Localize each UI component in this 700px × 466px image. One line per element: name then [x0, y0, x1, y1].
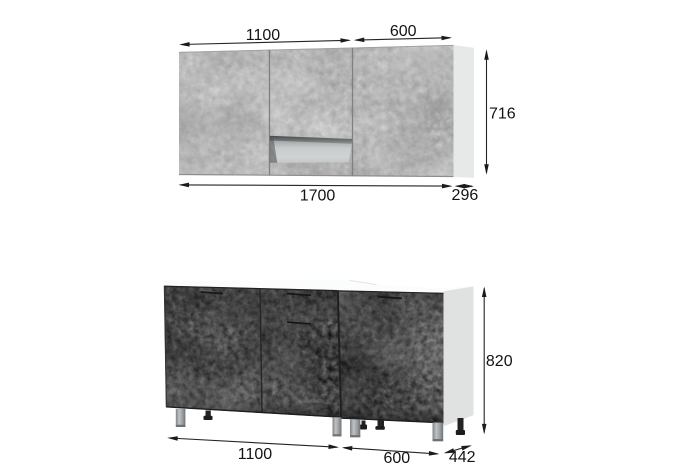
svg-text:716: 716: [489, 106, 516, 123]
svg-text:600: 600: [383, 450, 410, 466]
svg-text:1700: 1700: [300, 187, 336, 204]
svg-text:1100: 1100: [238, 446, 273, 463]
svg-text:296: 296: [452, 187, 479, 204]
svg-text:600: 600: [390, 23, 417, 40]
svg-text:442: 442: [449, 449, 476, 466]
svg-text:1100: 1100: [246, 27, 281, 44]
svg-text:820: 820: [486, 353, 513, 370]
